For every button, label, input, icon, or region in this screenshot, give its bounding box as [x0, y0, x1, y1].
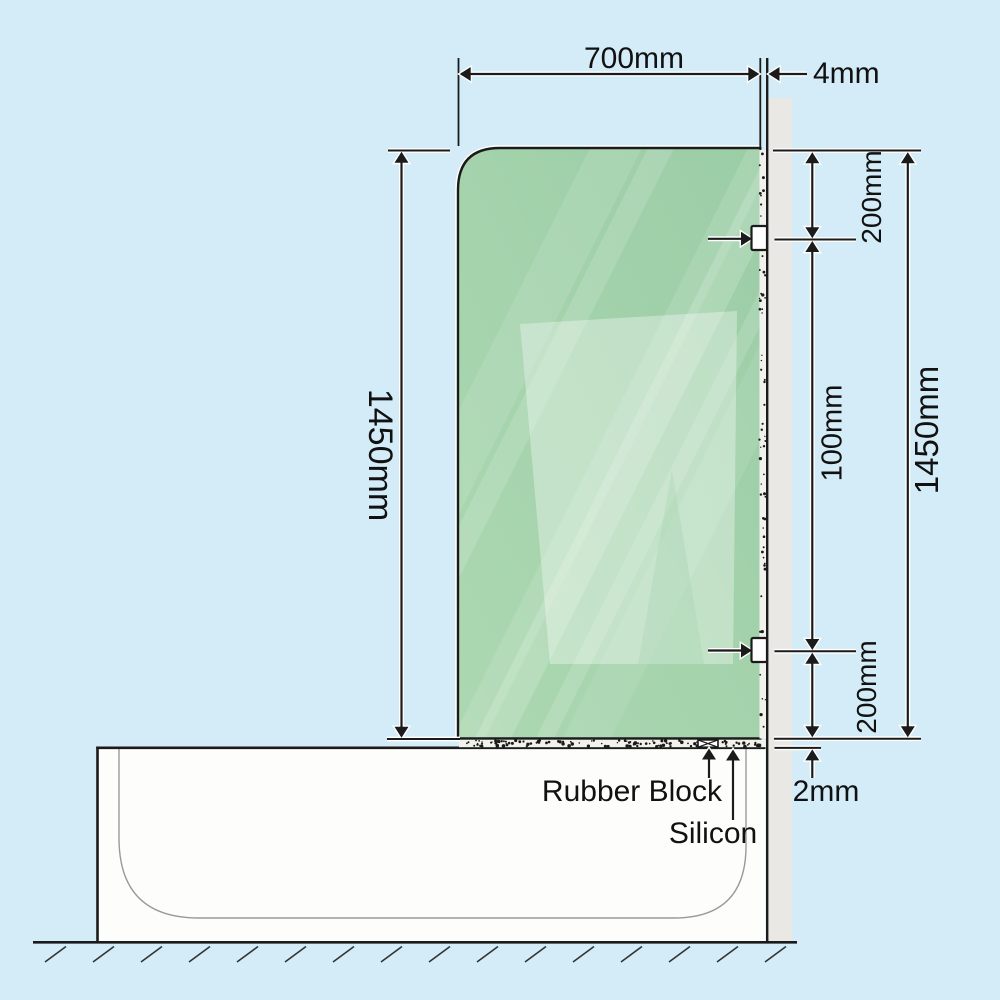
svg-text:2mm: 2mm: [793, 775, 860, 808]
svg-text:4mm: 4mm: [813, 57, 880, 90]
svg-text:700mm: 700mm: [584, 42, 684, 75]
svg-text:200mm: 200mm: [851, 640, 882, 733]
svg-text:1450mm: 1450mm: [908, 366, 945, 494]
svg-text:Silicon: Silicon: [669, 817, 757, 850]
svg-text:Rubber Block: Rubber Block: [542, 775, 723, 808]
svg-text:100mm: 100mm: [817, 385, 849, 482]
svg-text:200mm: 200mm: [856, 150, 887, 243]
svg-text:1450mm: 1450mm: [361, 389, 399, 521]
